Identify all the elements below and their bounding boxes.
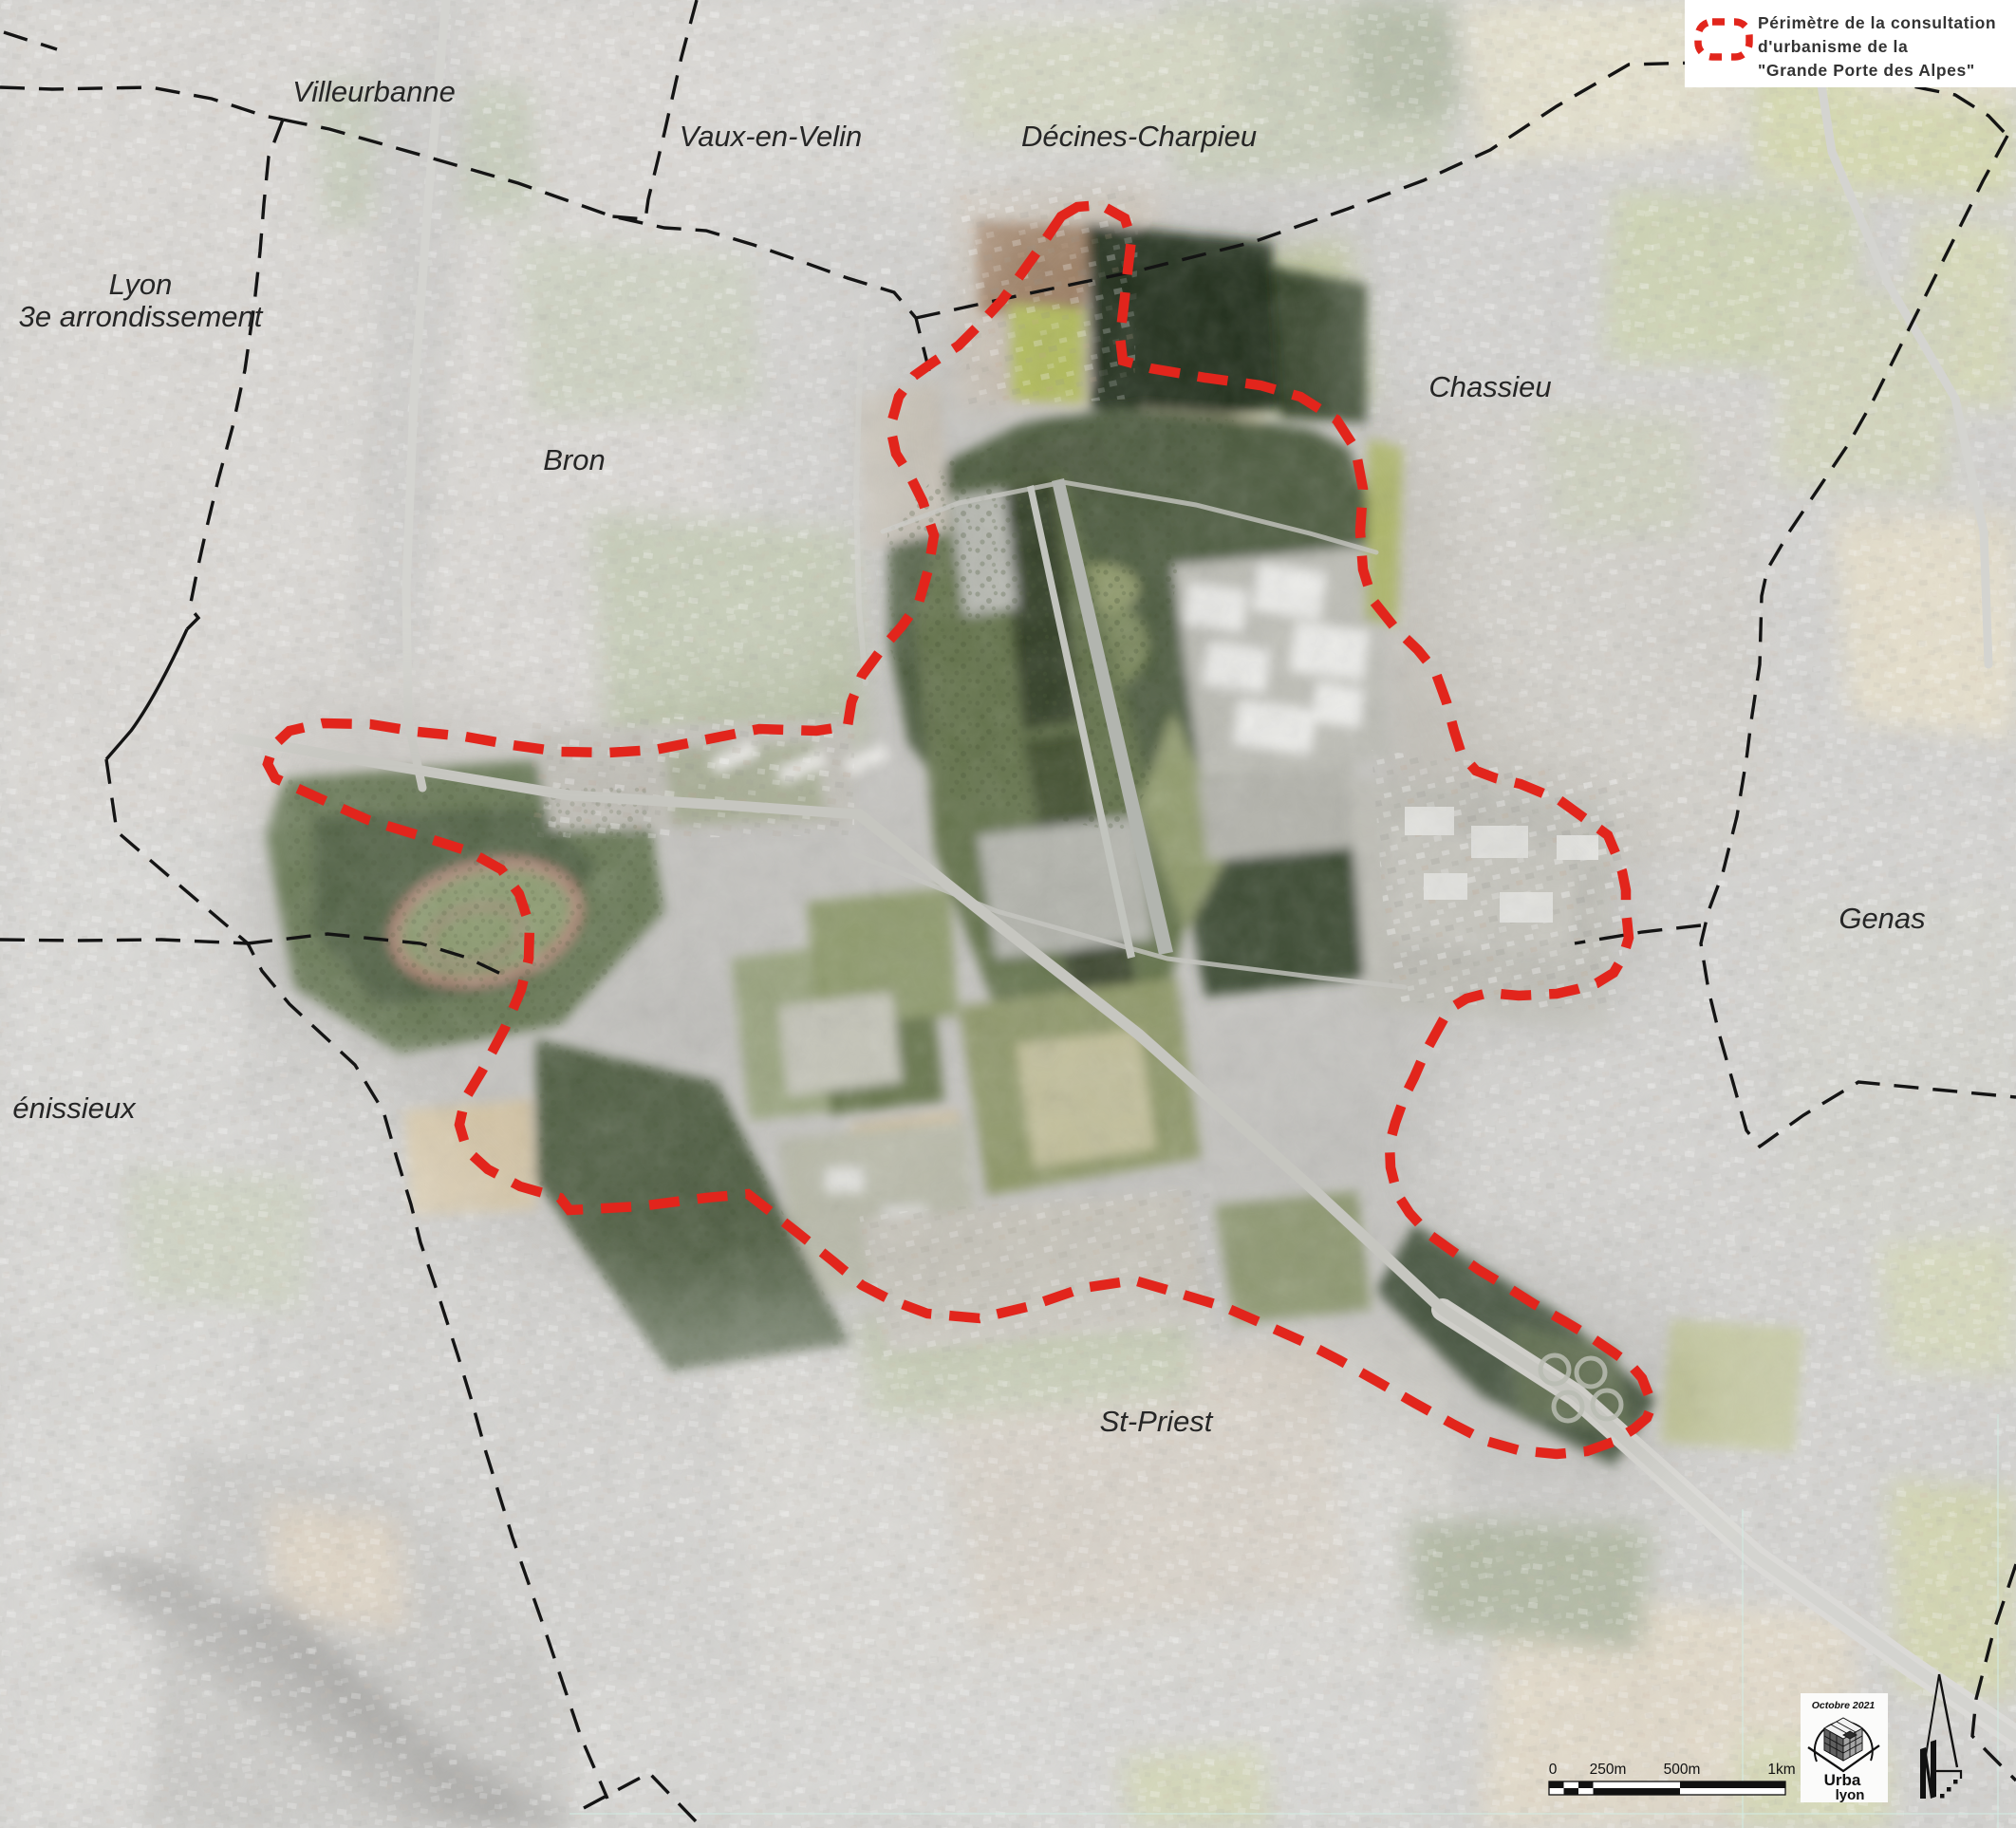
svg-text:énissieux: énissieux: [12, 1091, 137, 1125]
svg-text:Genas: Genas: [1839, 902, 1925, 935]
svg-text:0: 0: [1549, 1762, 1558, 1778]
svg-text:Vaux-en-Velin: Vaux-en-Velin: [680, 120, 862, 153]
svg-text:250m: 250m: [1590, 1762, 1627, 1778]
svg-text:lyon: lyon: [1836, 1787, 1865, 1803]
svg-text:"Grande Porte des Alpes": "Grande Porte des Alpes": [1758, 61, 1975, 80]
svg-text:Chassieu: Chassieu: [1428, 370, 1551, 403]
svg-text:d'urbanisme de la: d'urbanisme de la: [1758, 37, 1908, 56]
svg-text:3e arrondissement: 3e arrondissement: [19, 300, 264, 333]
svg-text:1km: 1km: [1767, 1762, 1795, 1778]
svg-text:Périmètre de la consultation: Périmètre de la consultation: [1758, 13, 1996, 32]
svg-text:Villeurbanne: Villeurbanne: [292, 75, 456, 108]
svg-text:Lyon: Lyon: [109, 268, 173, 301]
svg-text:500m: 500m: [1664, 1762, 1701, 1778]
svg-text:Décines-Charpieu: Décines-Charpieu: [1021, 120, 1257, 153]
svg-text:Octobre 2021: Octobre 2021: [1812, 1700, 1876, 1711]
svg-text:Bron: Bron: [543, 443, 605, 476]
svg-text:St-Priest: St-Priest: [1100, 1405, 1214, 1438]
